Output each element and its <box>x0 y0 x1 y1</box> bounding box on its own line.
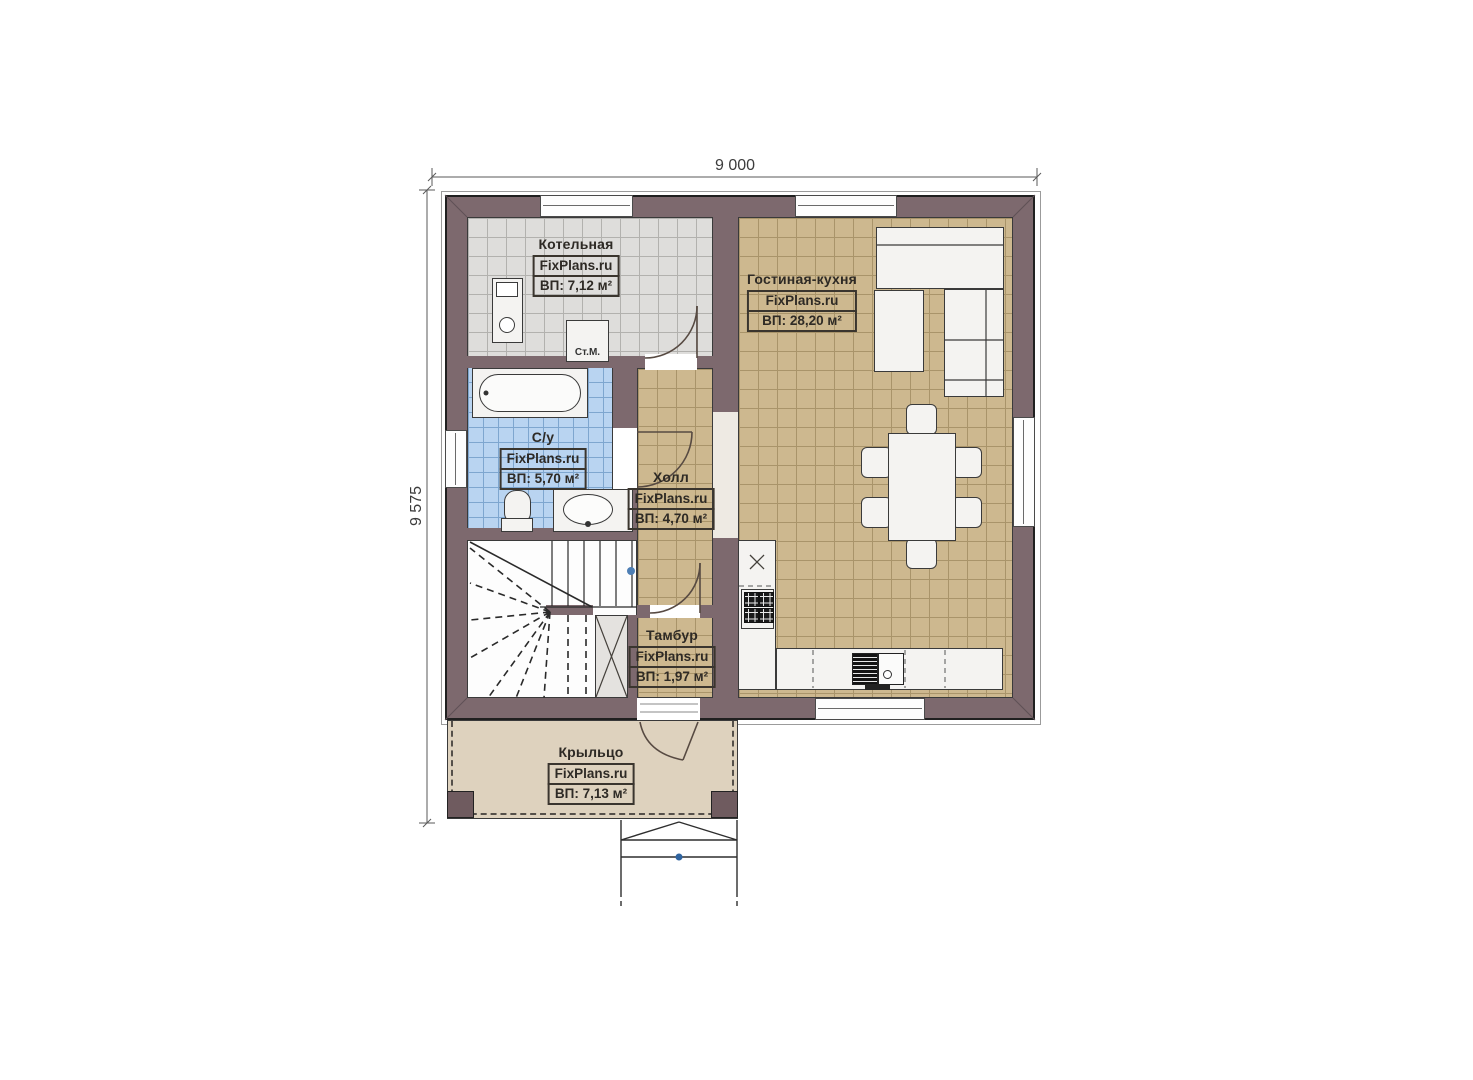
room-label-su: С/у FixPlans.ru ВП: 5,70 м² <box>500 429 587 490</box>
stair-treads <box>470 541 637 607</box>
area-box: ВП: 5,70 м² <box>500 468 587 490</box>
counter-dashed-dividers <box>739 586 945 688</box>
room-name: Холл <box>628 469 715 485</box>
room-label-kryltso: Крыльцо FixPlans.ru ВП: 7,13 м² <box>548 744 635 805</box>
area-box: ВП: 28,20 м² <box>747 310 857 332</box>
room-label-gostinaya: Гостиная-кухня FixPlans.ru ВП: 28,20 м² <box>747 271 857 332</box>
room-label-kotelnaya: Котельная FixPlans.ru ВП: 7,12 м² <box>533 236 620 297</box>
room-label-tambur: Тамбур FixPlans.ru ВП: 1,97 м² <box>629 627 716 688</box>
watermark-box: FixPlans.ru <box>629 646 716 668</box>
watermark-box: FixPlans.ru <box>500 448 587 470</box>
area-box: ВП: 4,70 м² <box>628 508 715 530</box>
door-arc-entry <box>640 722 683 760</box>
door-arc-kotelnaya <box>645 306 697 358</box>
watermark-box: FixPlans.ru <box>747 290 857 312</box>
room-name: Котельная <box>533 236 620 252</box>
watermark-box: FixPlans.ru <box>533 255 620 277</box>
entry-threshold-lines <box>640 704 698 712</box>
step-marker-dot <box>676 854 683 861</box>
room-name: С/у <box>500 429 587 445</box>
area-box: ВП: 7,13 м² <box>548 783 635 805</box>
area-box: ВП: 7,12 м² <box>533 275 620 297</box>
area-box: ВП: 1,97 м² <box>629 666 716 688</box>
dimension-width-label: 9 000 <box>695 157 775 175</box>
counter-cross-icon <box>750 555 764 569</box>
room-name: Тамбур <box>629 627 716 643</box>
sofa-cushion-lines <box>877 245 1003 396</box>
room-name: Крыльцо <box>548 744 635 760</box>
bathtub-faucet-dot <box>484 391 489 396</box>
dimension-height-label: 9 575 <box>408 468 426 544</box>
sink-faucet-dot <box>585 521 591 527</box>
hall-marker-dot <box>627 567 635 575</box>
door-arc-tambur <box>650 563 700 613</box>
floor-plan-canvas: Ст.М. <box>0 0 1473 1080</box>
closet-cross <box>596 616 627 697</box>
watermark-box: FixPlans.ru <box>628 488 715 510</box>
room-label-holl: Холл FixPlans.ru ВП: 4,70 м² <box>628 469 715 530</box>
dimension-lines <box>419 168 1041 827</box>
room-name: Гостиная-кухня <box>747 271 857 287</box>
watermark-box: FixPlans.ru <box>548 763 635 785</box>
door-swings <box>637 306 700 760</box>
entry-steps <box>621 820 737 906</box>
